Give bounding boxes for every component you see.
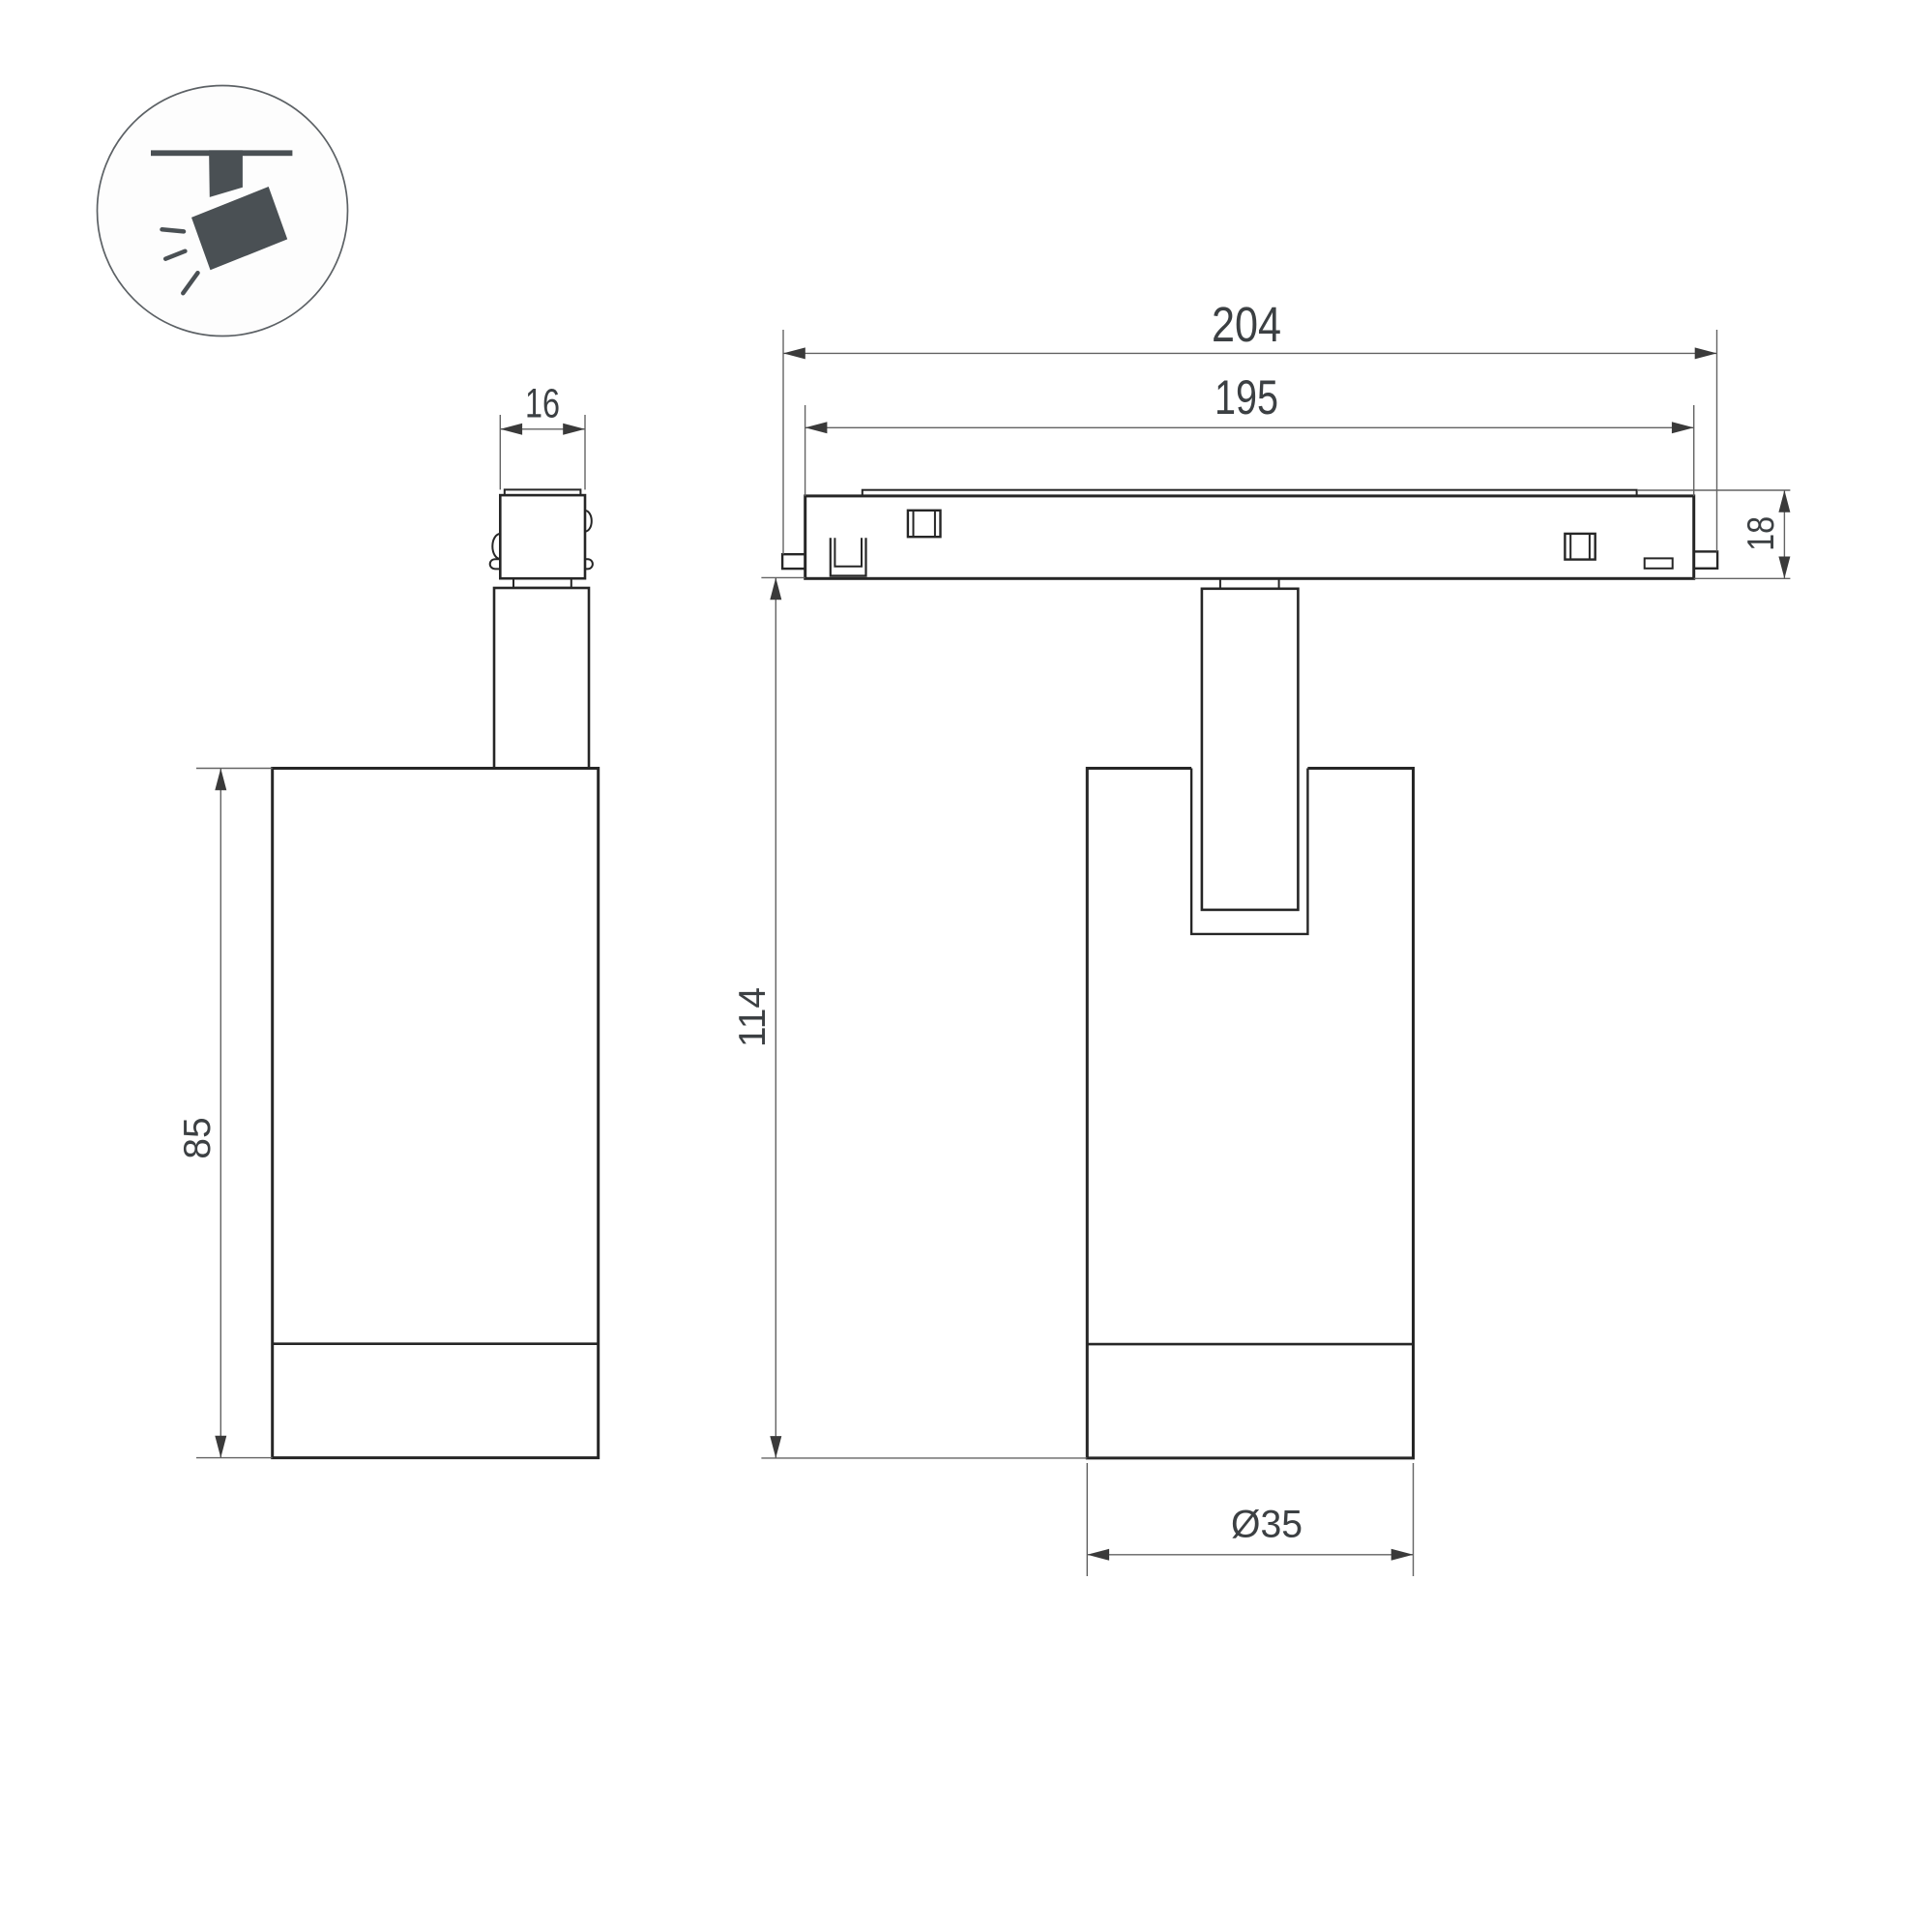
svg-text:114: 114	[732, 987, 774, 1047]
svg-text:Ø35: Ø35	[1231, 1504, 1303, 1546]
svg-text:18: 18	[1741, 516, 1782, 551]
svg-text:85: 85	[177, 1117, 219, 1158]
svg-text:204: 204	[1212, 297, 1281, 352]
svg-text:16: 16	[525, 381, 560, 427]
svg-text:195: 195	[1215, 370, 1278, 424]
